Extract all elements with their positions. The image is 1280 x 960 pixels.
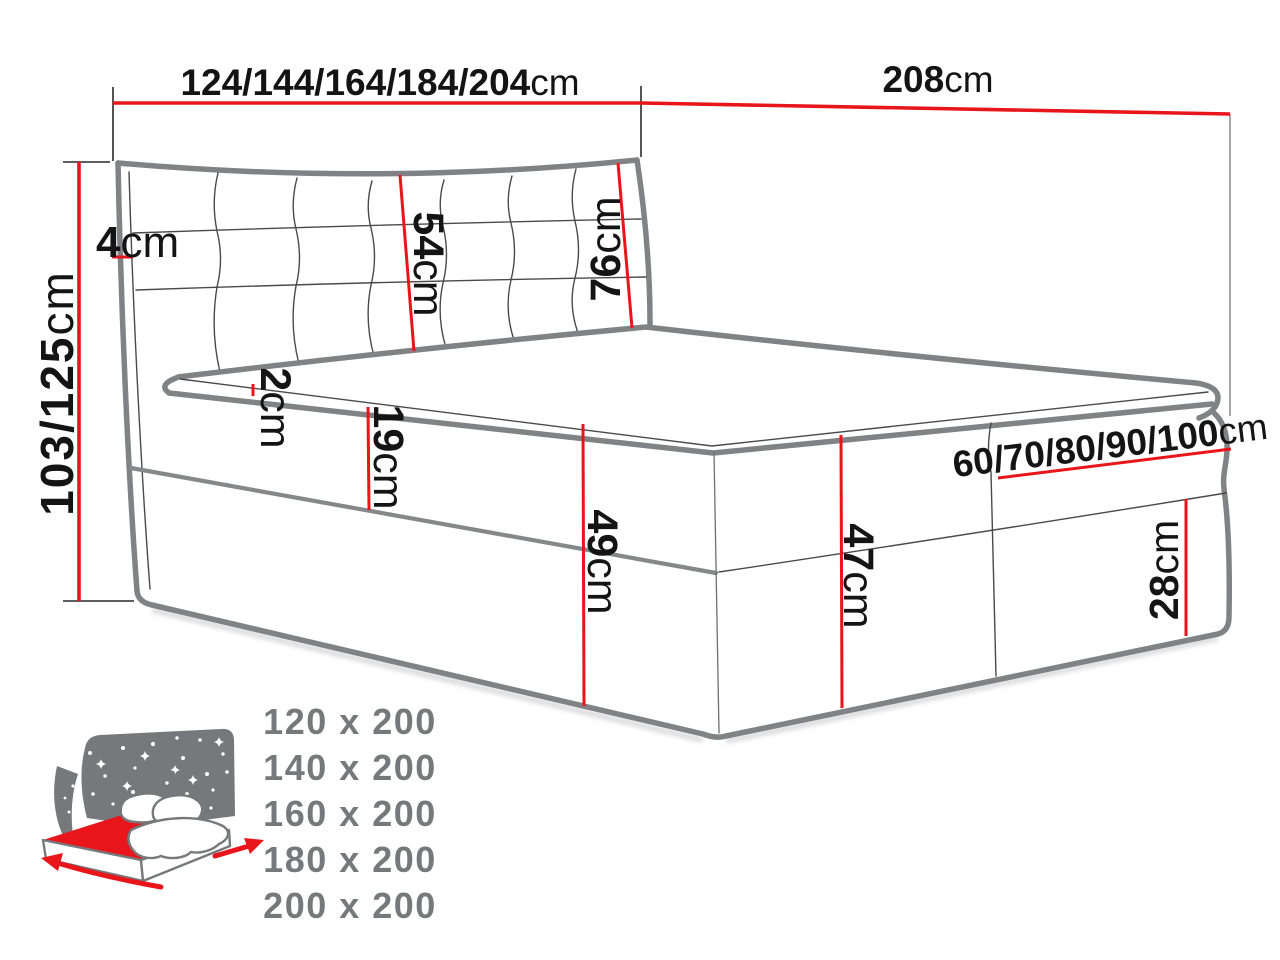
label-foot-end-height: 47cm: [834, 523, 882, 628]
base-corner-edge: [714, 452, 719, 733]
size-item: 200 x 200: [263, 885, 437, 926]
size-item: 160 x 200: [263, 793, 437, 834]
label-frame-thickness: 4cm: [96, 218, 179, 267]
headboard-top-edge: [118, 160, 637, 174]
headboard-right-edge: [637, 160, 650, 324]
length-arrow-head: [244, 838, 264, 854]
size-legend: 120 x 200 140 x 200 160 x 200 180 x 200 …: [41, 701, 437, 926]
dim-line-length: [641, 103, 1230, 114]
label-upper-box-height: 19cm: [364, 404, 412, 509]
mattress-back-edge: [178, 327, 1218, 418]
dimension-labels: 124/144/164/184/204cm 208cm 103/125cm 4c…: [31, 59, 1270, 629]
size-item: 180 x 200: [263, 839, 437, 880]
label-width-options: 124/144/164/184/204cm: [180, 62, 579, 103]
label-side-height: 49cm: [578, 509, 626, 614]
bed-sizes-icon: [41, 729, 264, 887]
label-mattress-lip: 2cm: [251, 367, 299, 448]
bed-dimension-diagram: 124/144/164/184/204cm 208cm 103/125cm 4c…: [0, 0, 1280, 960]
size-item: 120 x 200: [263, 701, 437, 742]
label-height-options: 103/125cm: [31, 270, 83, 516]
size-item: 140 x 200: [263, 747, 437, 788]
base-front-seam: [131, 468, 716, 573]
tufting-seams: [133, 169, 646, 372]
label-headboard-height: 76cm: [582, 196, 630, 301]
size-list: 120 x 200 140 x 200 160 x 200 180 x 200 …: [263, 701, 437, 926]
label-lower-box-height: 28cm: [1141, 520, 1187, 620]
dimension-lines: [63, 86, 1231, 708]
label-length-total: 208cm: [882, 59, 993, 100]
label-headboard-cushion-height: 54cm: [404, 211, 452, 316]
